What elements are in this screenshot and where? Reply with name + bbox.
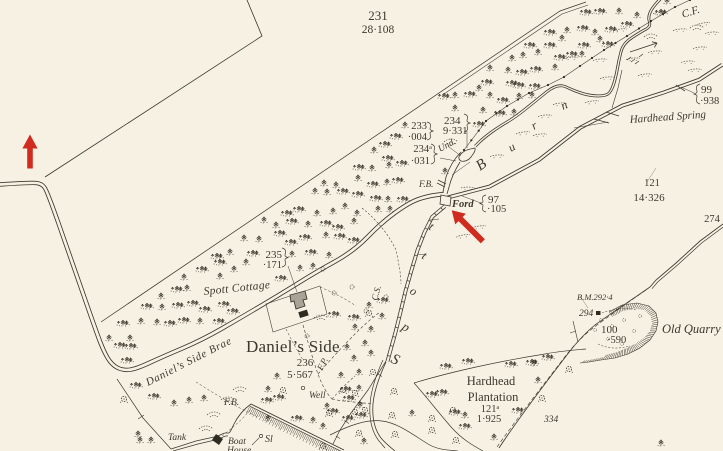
svg-text:·171: ·171 (263, 260, 282, 271)
svg-text:231: 231 (368, 8, 388, 23)
svg-text:9·331: 9·331 (443, 126, 468, 137)
svg-text:Old Quarry: Old Quarry (662, 322, 721, 336)
svg-text:Sl: Sl (265, 434, 273, 445)
svg-text:F.B.: F.B. (418, 179, 433, 189)
svg-text:·590: ·590 (607, 335, 626, 346)
svg-text:Ford: Ford (451, 199, 474, 210)
svg-text:28·108: 28·108 (362, 24, 395, 36)
svg-text:House: House (226, 446, 251, 451)
svg-text:F.B.: F.B. (223, 398, 239, 408)
svg-text:1·925: 1·925 (477, 414, 502, 425)
svg-text:236: 236 (297, 357, 314, 369)
svg-text:·004: ·004 (408, 132, 428, 143)
svg-text:Plantation: Plantation (468, 390, 519, 404)
svg-text:B.M.292·4: B.M.292·4 (577, 292, 613, 302)
svg-text:·938: ·938 (700, 96, 719, 107)
svg-text:Hardhead: Hardhead (467, 374, 516, 388)
svg-text:5·567: 5·567 (287, 369, 313, 381)
svg-text:Daniel’s Side: Daniel’s Side (246, 337, 340, 356)
svg-text:14·326: 14·326 (633, 192, 665, 204)
svg-text:233: 233 (411, 121, 427, 132)
svg-text:Well: Well (309, 391, 326, 401)
svg-text:121: 121 (644, 178, 660, 189)
svg-text:·105: ·105 (487, 204, 506, 215)
svg-text:Tank: Tank (168, 433, 187, 443)
svg-text:·031: ·031 (411, 156, 430, 167)
svg-text:334: 334 (543, 415, 559, 425)
svg-text:294: 294 (579, 309, 594, 319)
svg-text:99: 99 (701, 84, 713, 96)
svg-text:274: 274 (704, 214, 721, 225)
svg-text:234ᵃ: 234ᵃ (413, 144, 432, 155)
